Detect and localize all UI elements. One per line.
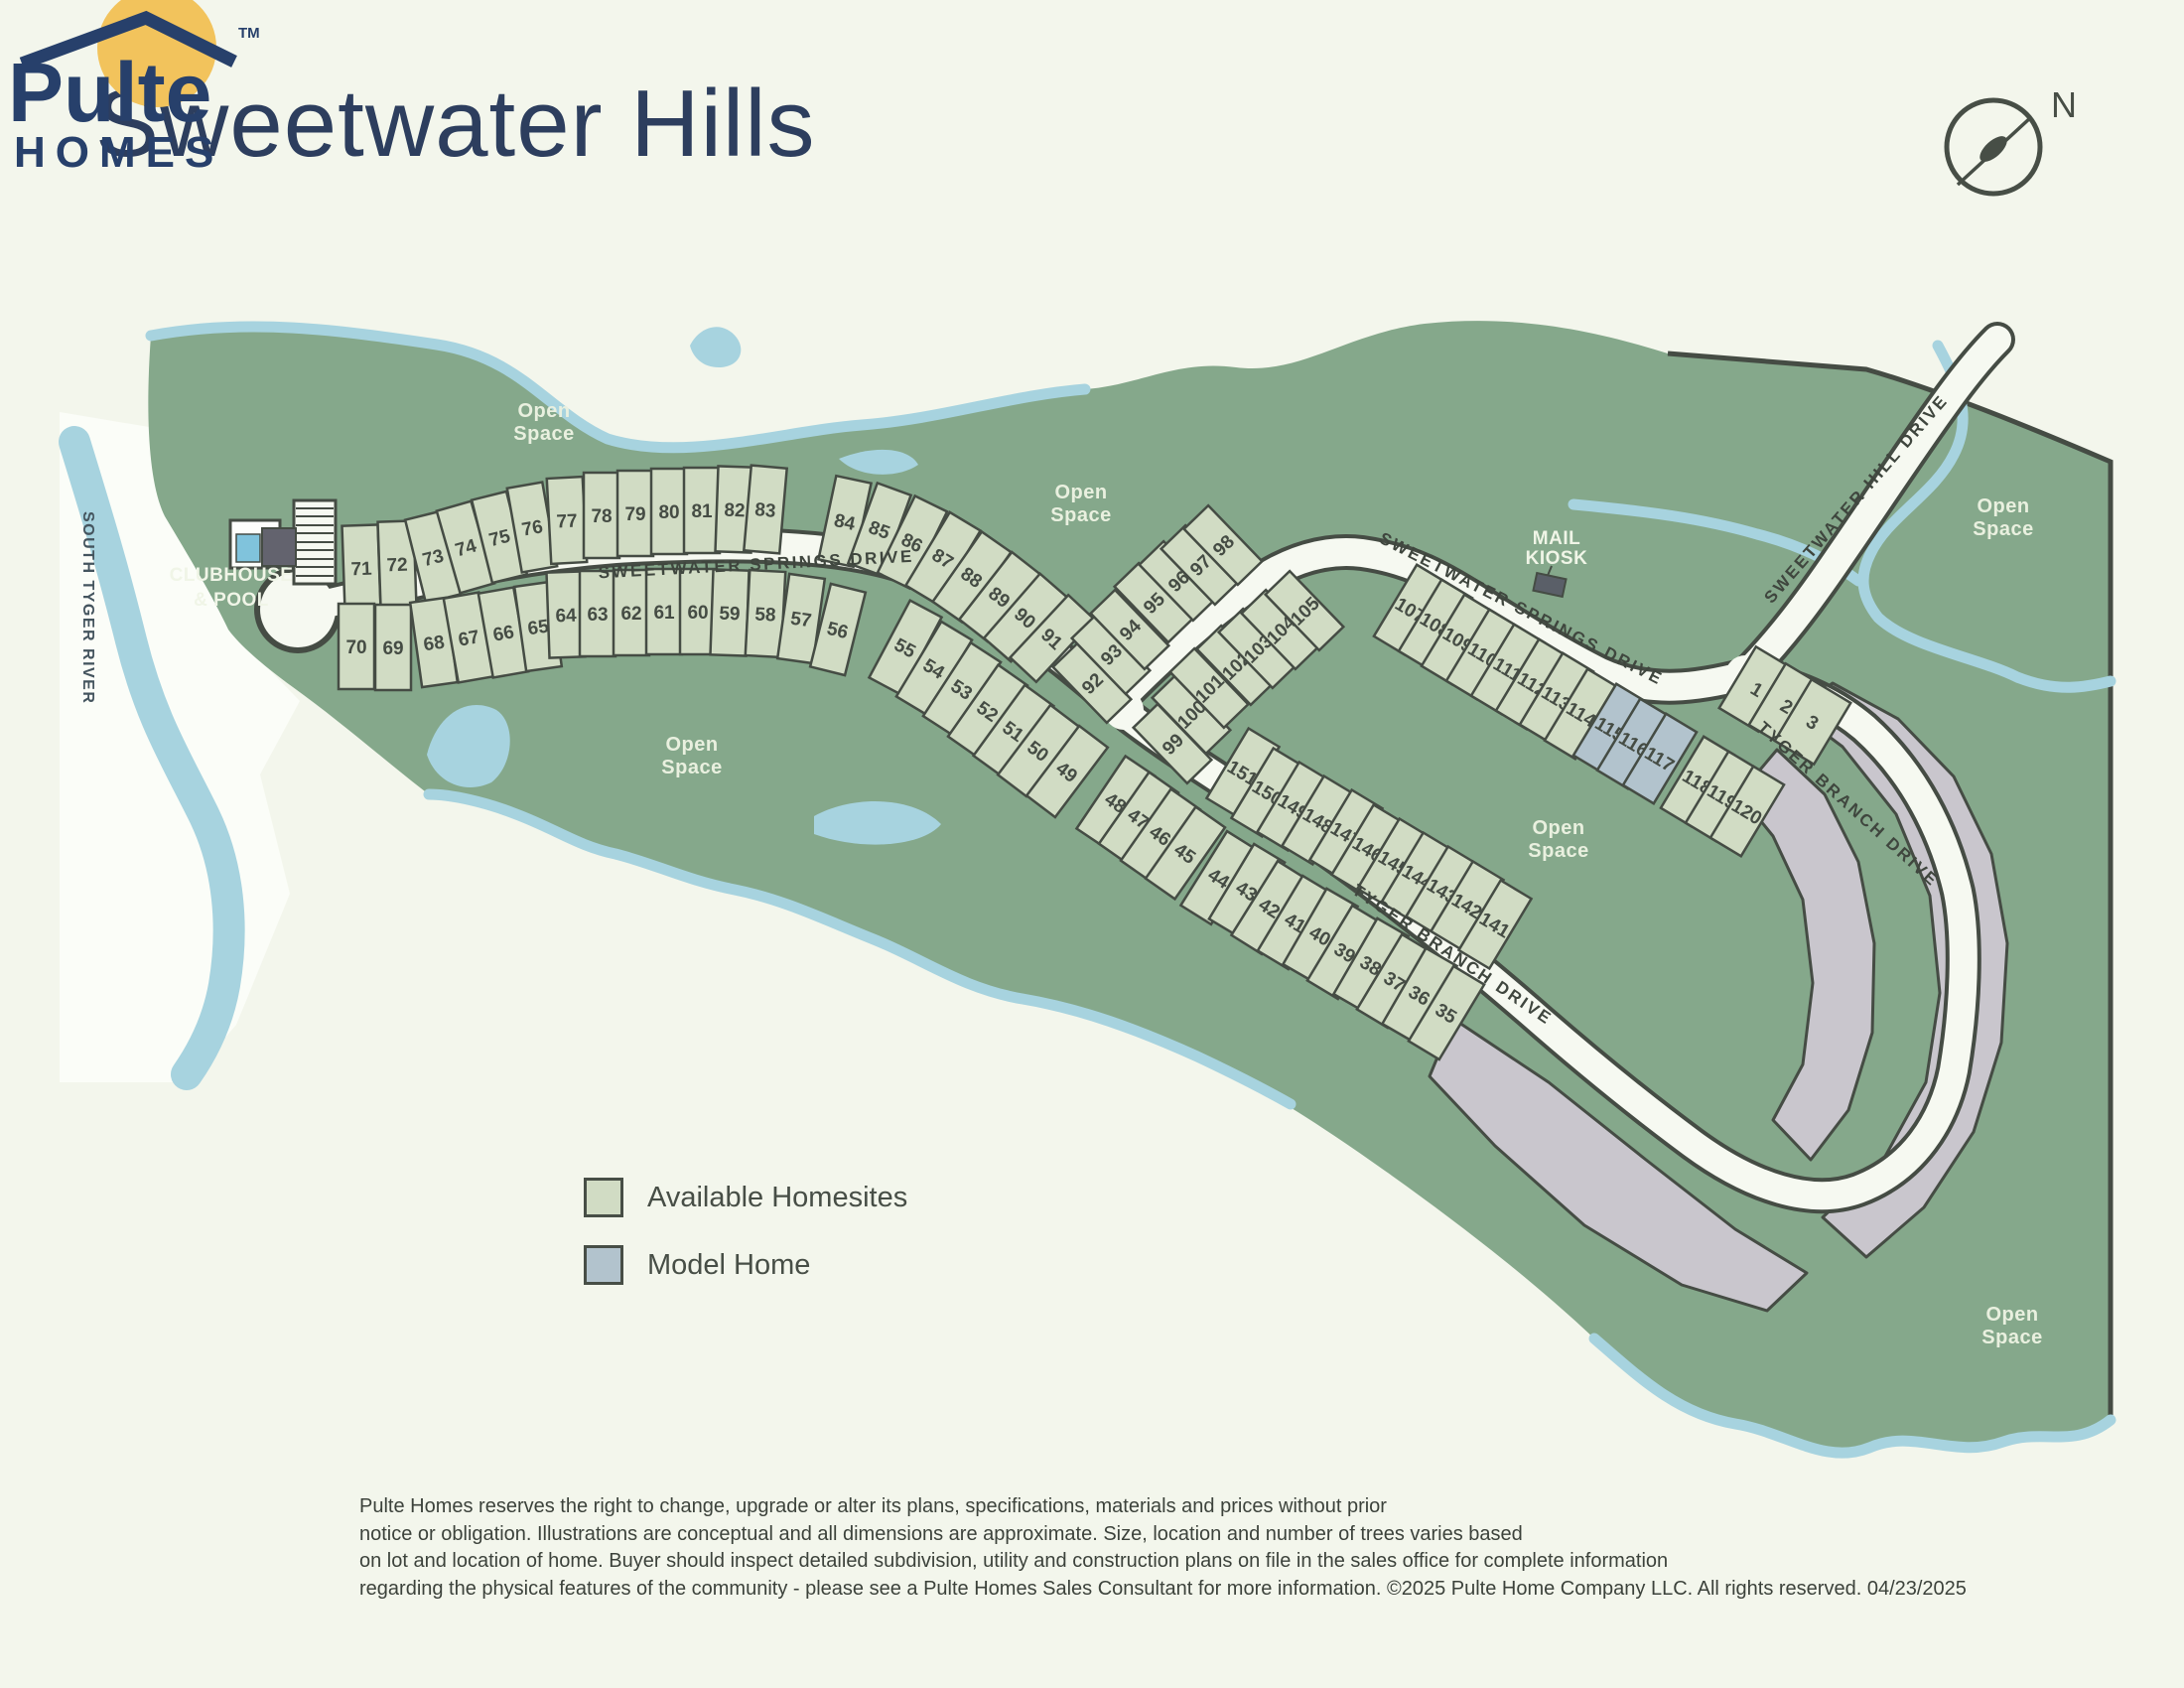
lot-number: 63 — [587, 605, 608, 626]
lot-number: 57 — [789, 609, 813, 633]
river-label: SOUTH TYGER RIVER — [79, 511, 96, 704]
lot-number: 77 — [556, 510, 578, 532]
open-space-label: OpenSpace — [1973, 495, 2033, 540]
disclaimer-line-1: Pulte Homes reserves the right to change… — [359, 1493, 2136, 1521]
lot-61[interactable]: 61 — [646, 569, 682, 654]
open-space-label: OpenSpace — [1528, 817, 1588, 862]
lot-83[interactable]: 83 — [744, 466, 786, 554]
lot-number: 70 — [345, 637, 366, 658]
lot-number: 82 — [724, 500, 746, 522]
lot-number: 71 — [350, 559, 372, 581]
disclaimer-line-2: notice or obligation. Illustrations are … — [359, 1521, 2136, 1549]
clubhouse-label-line1: CLUBHOUSE — [170, 565, 294, 586]
pool — [236, 534, 260, 562]
lot-number: 60 — [687, 603, 708, 624]
logo-brand: Pulte — [8, 46, 211, 139]
lot-71[interactable]: 71 — [342, 524, 381, 611]
lot-80[interactable]: 80 — [651, 469, 687, 554]
lot-59[interactable]: 59 — [711, 569, 750, 655]
model-home-swatch — [584, 1245, 623, 1285]
lot-number: 79 — [624, 504, 645, 525]
mail-kiosk-label-line1: MAIL — [1533, 528, 1580, 549]
lot-77[interactable]: 77 — [547, 477, 587, 564]
lot-number: 68 — [422, 633, 446, 656]
stream-inlet — [690, 327, 741, 367]
lot-63[interactable]: 63 — [580, 571, 615, 656]
lot-number: 58 — [754, 604, 776, 626]
lot-number: 76 — [520, 516, 544, 540]
available-homesite-swatch — [584, 1178, 623, 1217]
open-space-label: OpenSpace — [513, 400, 574, 445]
lot-number: 64 — [555, 606, 577, 628]
site-map: 7172737475767778798081828384858687888990… — [0, 0, 2184, 1688]
lot-number: 69 — [382, 638, 403, 659]
pulte-homes-logo: TM Pulte HOMES — [0, 0, 338, 238]
lot-number: 83 — [753, 499, 776, 522]
disclaimer-line-4: regarding the physical features of the c… — [359, 1576, 2136, 1604]
logo-tm: TM — [238, 25, 260, 42]
lot-number: 62 — [620, 604, 641, 625]
model-home-label: Model Home — [647, 1249, 810, 1282]
open-space-label: OpenSpace — [661, 734, 722, 778]
open-space-label: OpenSpace — [1050, 482, 1111, 526]
clubhouse-annex — [262, 528, 296, 566]
lot-62[interactable]: 62 — [614, 570, 649, 655]
lot-number: 81 — [691, 501, 713, 522]
lot-number: 59 — [719, 604, 741, 626]
mail-kiosk-label-line2: KIOSK — [1526, 548, 1588, 569]
clubhouse-label-line2: & POOL — [194, 590, 269, 611]
lot-number: 72 — [386, 555, 408, 577]
legend-item-model: Model Home — [584, 1245, 907, 1285]
lot-78[interactable]: 78 — [584, 473, 619, 558]
lot-81[interactable]: 81 — [684, 468, 720, 553]
open-space-label: OpenSpace — [1981, 1304, 2042, 1348]
disclaimer-line-3: on lot and location of home. Buyer shoul… — [359, 1548, 2136, 1576]
legend-item-available: Available Homesites — [584, 1178, 907, 1217]
lot-number: 66 — [491, 622, 515, 645]
lot-79[interactable]: 79 — [617, 471, 653, 556]
logo-sub: HOMES — [14, 128, 223, 177]
site-map-page: Sweetwater Hills — [0, 0, 2184, 1688]
lot-number: 67 — [457, 627, 480, 650]
lot-number: 78 — [591, 506, 612, 527]
compass: N — [1947, 84, 2077, 194]
compass-north-label: N — [2051, 84, 2077, 125]
lot-70[interactable]: 70 — [339, 604, 374, 689]
available-homesite-label: Available Homesites — [647, 1182, 907, 1214]
lot-69[interactable]: 69 — [375, 605, 411, 690]
lot-number: 61 — [653, 603, 675, 624]
legend: Available Homesites Model Home — [584, 1178, 907, 1313]
lot-number: 80 — [658, 502, 679, 523]
disclaimer: Pulte Homes reserves the right to change… — [359, 1493, 2136, 1603]
